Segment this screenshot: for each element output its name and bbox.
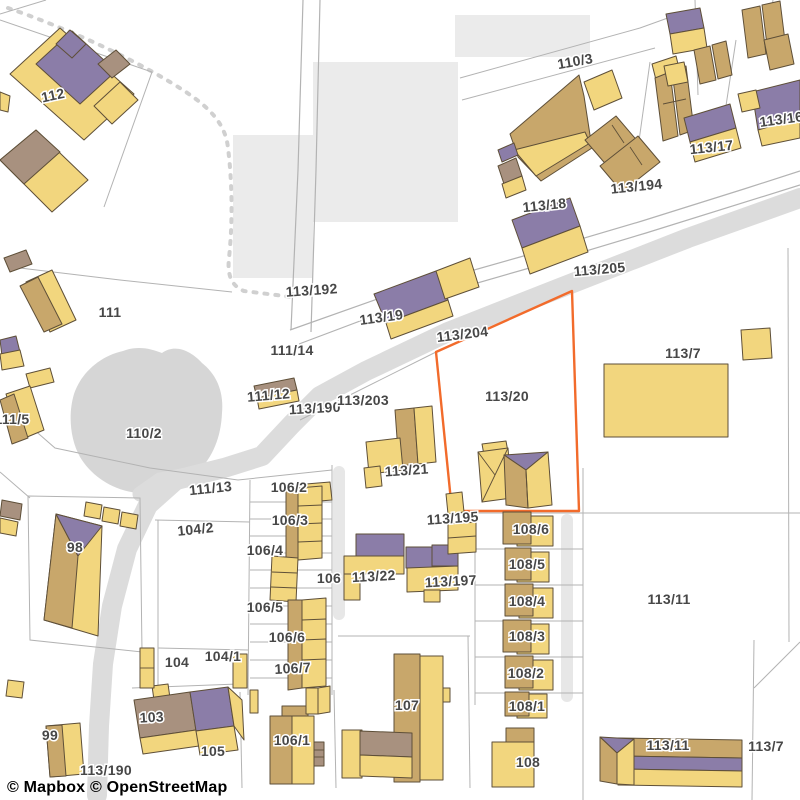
parcel-label-99: 99 [42, 727, 58, 743]
map-canvas[interactable]: 112110/3113/16113/17113/194113/18113/205… [0, 0, 800, 800]
parcel-label-108-5: 108/5 [509, 556, 546, 572]
attribution-mapbox-link[interactable]: © Mapbox [7, 779, 85, 796]
parcel-label-113-205: 113/205 [573, 259, 626, 279]
parcel-label-113-192: 113/192 [285, 280, 338, 300]
parcel-label-106-7: 106/7 [274, 659, 311, 677]
parcel-label-107: 107 [395, 697, 419, 713]
parcel-label-111-5: 111/5 [0, 411, 30, 427]
parcel-label-113-11: 113/11 [647, 591, 690, 607]
parcel-label-113-7: 113/7 [748, 738, 784, 754]
parcel-label-106-3: 106/3 [272, 512, 309, 528]
gray-lot-top [455, 15, 590, 57]
parcel-label-111: 111 [99, 304, 122, 320]
parcel-label-113-190: 113/190 [288, 399, 341, 418]
parcel-label-108: 108 [516, 754, 540, 770]
parcel-label-106-1: 106/1 [274, 732, 311, 748]
map-svg[interactable]: 112110/3113/16113/17113/194113/18113/205… [0, 0, 800, 800]
parcel-label-105: 105 [201, 743, 225, 759]
parcel-label-113-21: 113/21 [384, 461, 429, 480]
parcel-label-113-11: 113/11 [646, 737, 689, 753]
parcel-label-106-6: 106/6 [269, 629, 306, 645]
parcel-label-106: 106 [317, 570, 341, 586]
parcel-label-111-14: 111/14 [270, 342, 313, 358]
parcel-label-106-4: 106/4 [247, 542, 284, 558]
parcel-label-113-197: 113/197 [424, 572, 477, 591]
parcel-label-113-20: 113/20 [485, 388, 529, 404]
parcel-label-108-6: 108/6 [513, 521, 550, 537]
parcel-label-106-5: 106/5 [247, 599, 284, 615]
parcel-label-113-7: 113/7 [665, 345, 701, 361]
parcel-label-98: 98 [67, 539, 83, 555]
parcel-label-113-22: 113/22 [351, 567, 396, 585]
attribution: © Mapbox © OpenStreetMap [7, 779, 227, 797]
parcel-label-104-1: 104/1 [205, 648, 242, 664]
parcel-label-104: 104 [165, 654, 189, 670]
parcel-label-108-2: 108/2 [508, 665, 545, 681]
parcel-label-113-190: 113/190 [80, 762, 132, 778]
parcel-label-108-1: 108/1 [509, 698, 546, 714]
parcel-label-111-13: 111/13 [188, 478, 233, 498]
parcel-label-110-2: 110/2 [126, 425, 162, 441]
parcel-label-106-2: 106/2 [271, 479, 308, 495]
parcel-label-104-2: 104/2 [176, 519, 214, 539]
gray-lot-center [313, 62, 458, 222]
gray-lot-left [233, 135, 313, 278]
parcel-label-103: 103 [139, 708, 164, 725]
parcel-label-113-203: 113/203 [337, 392, 389, 408]
parcel-label-113-17: 113/17 [689, 137, 734, 157]
attribution-osm-link[interactable]: © OpenStreetMap [90, 779, 227, 796]
parcel-label-108-3: 108/3 [509, 628, 546, 644]
parcel-label-108-4: 108/4 [509, 593, 546, 609]
